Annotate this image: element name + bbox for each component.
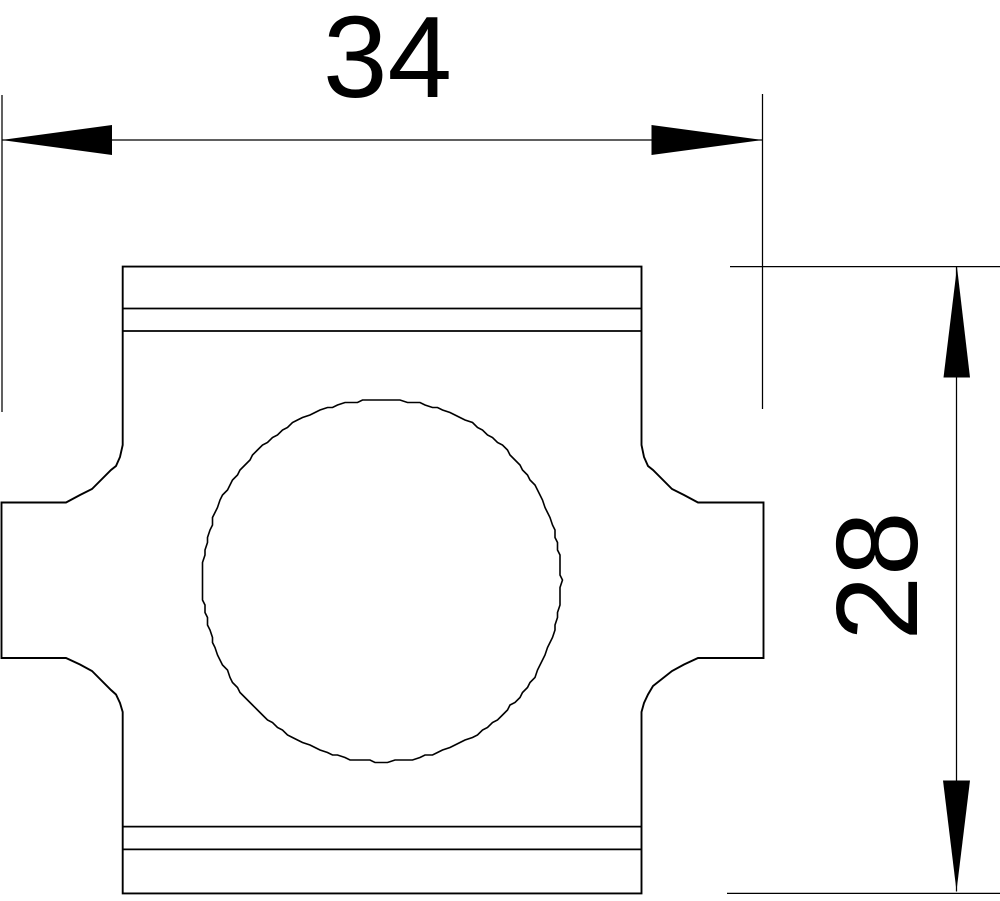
svg-text:34: 34: [323, 0, 452, 122]
svg-text:28: 28: [812, 511, 942, 640]
